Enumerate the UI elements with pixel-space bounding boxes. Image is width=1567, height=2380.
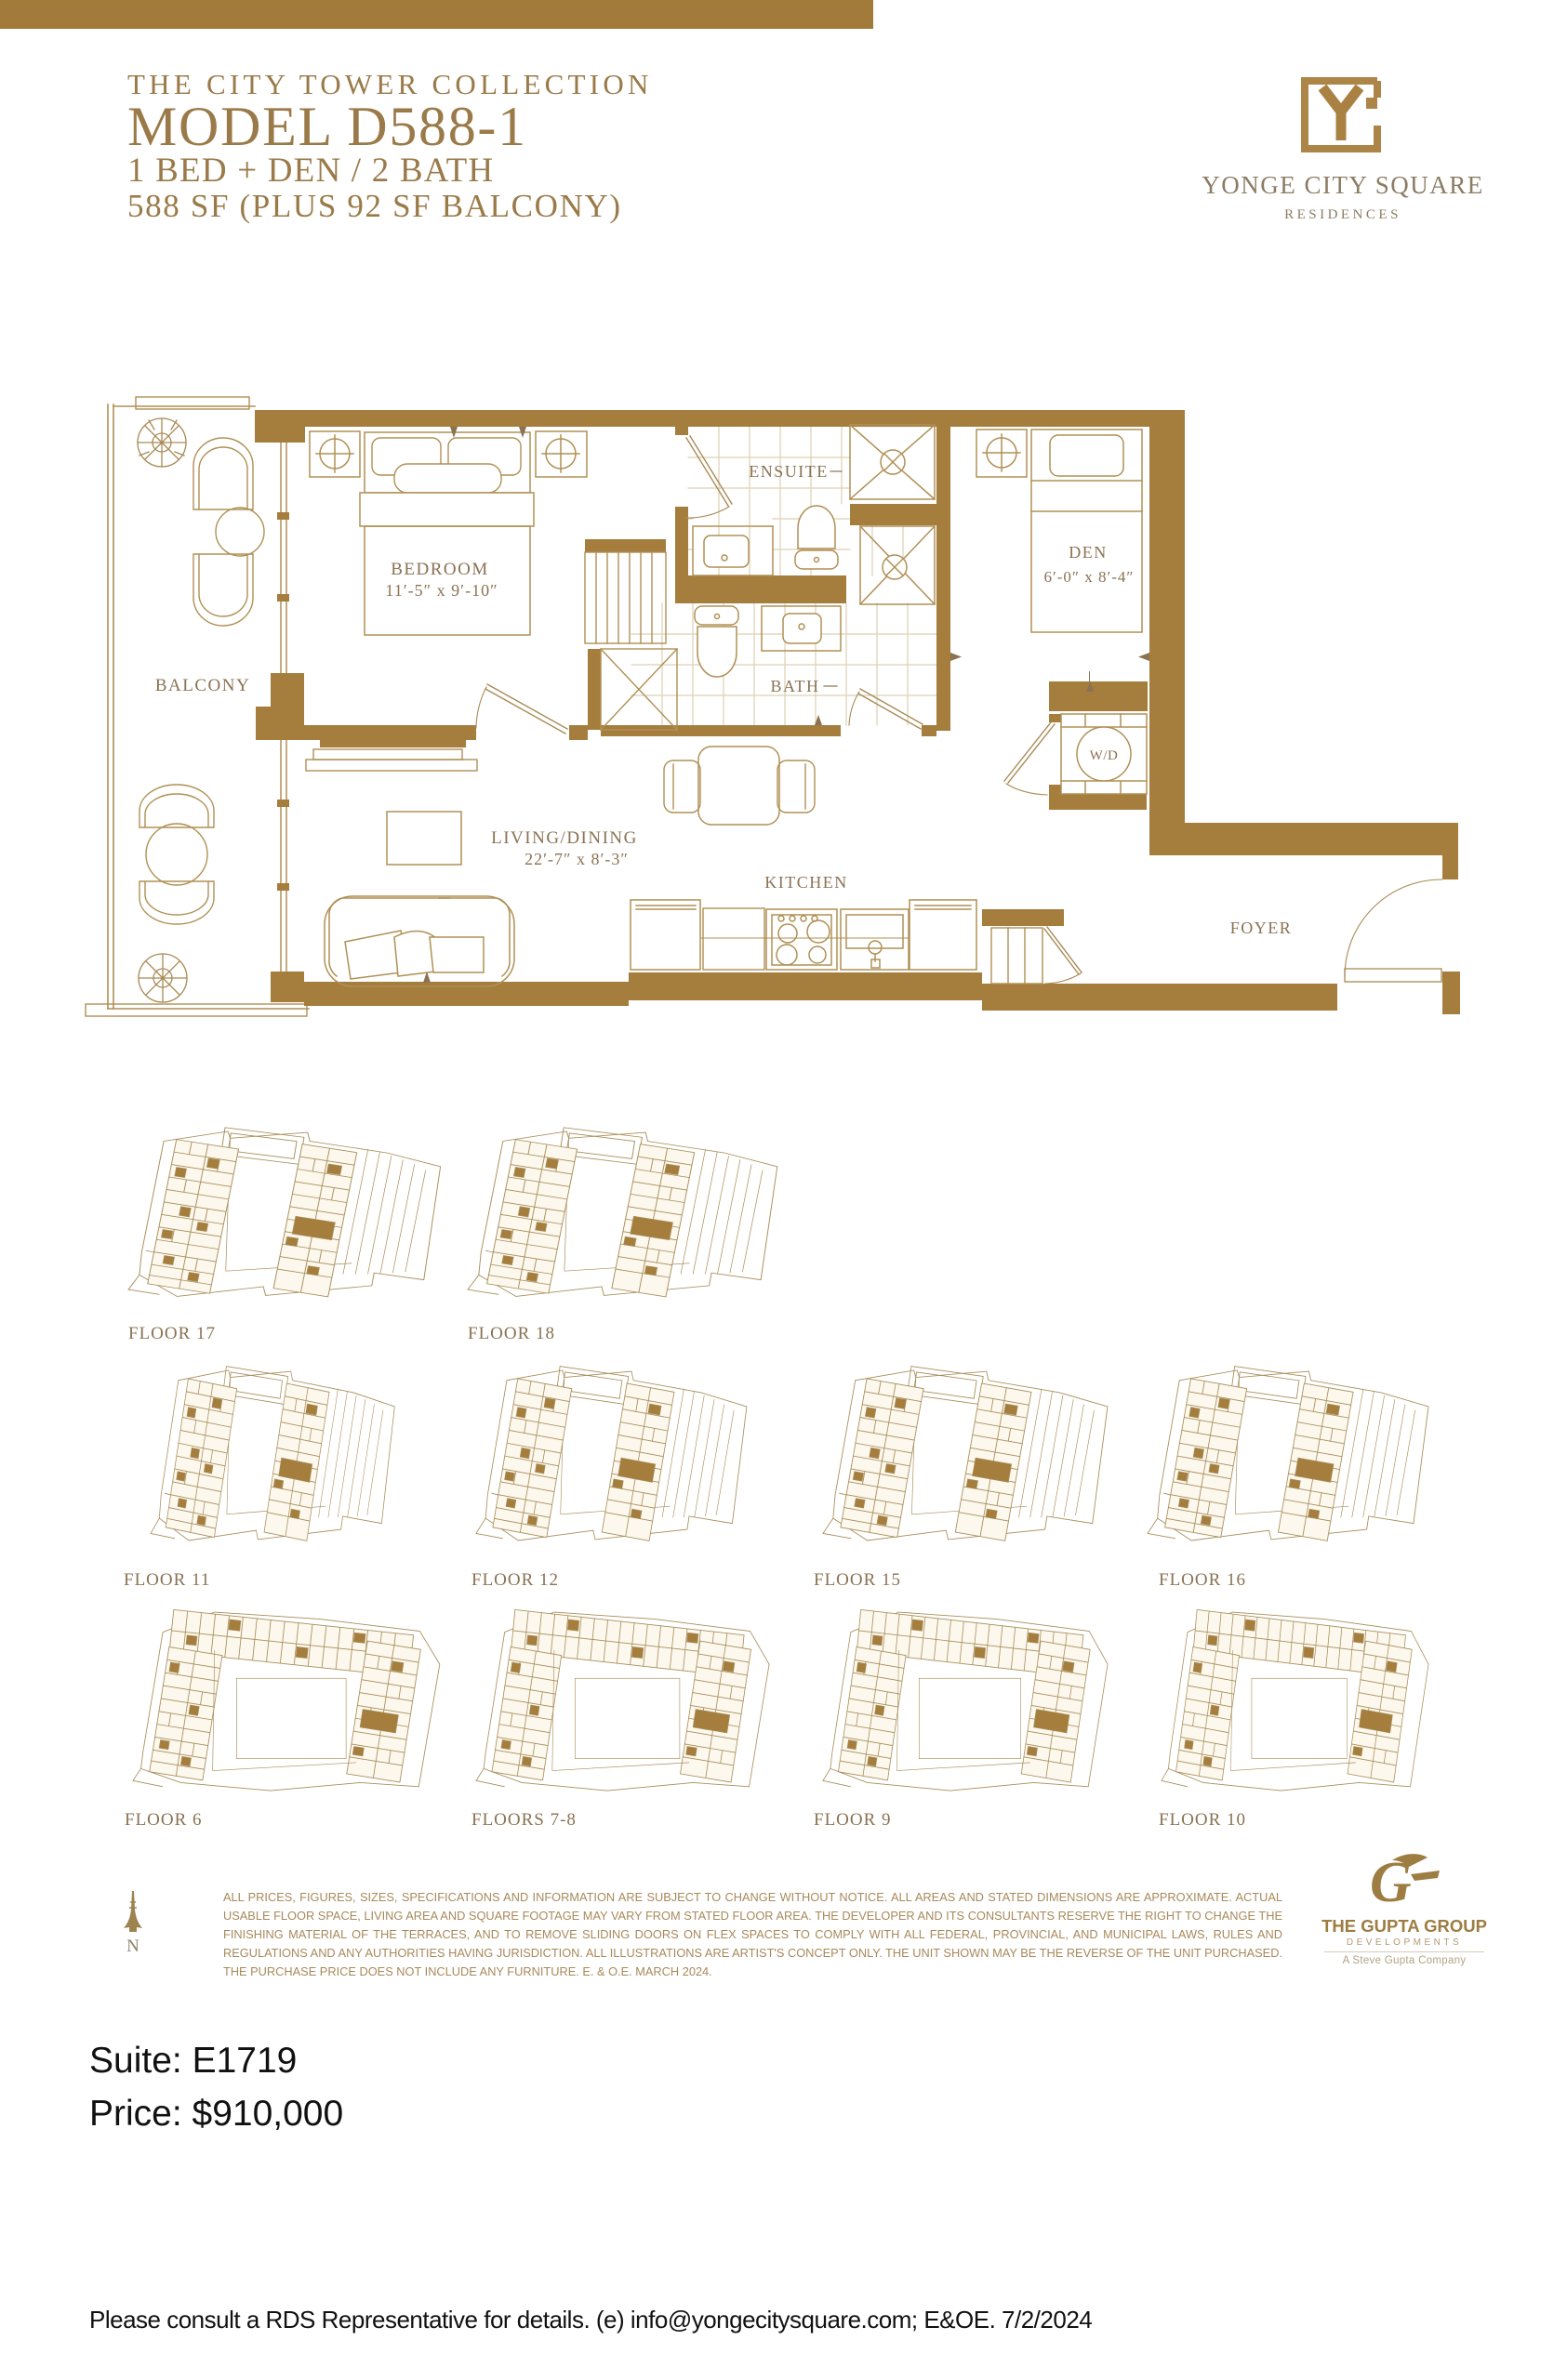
svg-text:FLOOR 16: FLOOR 16 [1159,1570,1246,1590]
svg-text:FOYER: FOYER [1230,919,1293,937]
svg-text:DEN: DEN [1069,543,1108,562]
svg-text:LIVING/DINING: LIVING/DINING [491,828,638,848]
svg-text:FLOOR 9: FLOOR 9 [814,1810,892,1830]
svg-text:6′-0″ x 8′-4″: 6′-0″ x 8′-4″ [1044,568,1135,586]
svg-text:RESIDENCES: RESIDENCES [1284,207,1401,222]
svg-text:FLOOR 11: FLOOR 11 [124,1570,210,1590]
svg-text:FLOOR 17: FLOOR 17 [128,1324,216,1343]
svg-text:FLOOR 6: FLOOR 6 [125,1810,203,1830]
svg-text:BALCONY: BALCONY [155,676,250,695]
svg-text:11′-5″ x 9′-10″: 11′-5″ x 9′-10″ [385,581,498,600]
svg-text:FLOOR 10: FLOOR 10 [1159,1810,1246,1830]
svg-text:KITCHEN: KITCHEN [764,873,848,892]
svg-text:FLOOR 12: FLOOR 12 [471,1570,559,1590]
svg-text:22′-7″ x 8′-3″: 22′-7″ x 8′-3″ [525,850,629,868]
svg-text:W/D: W/D [1090,748,1119,763]
svg-text:FLOOR 18: FLOOR 18 [468,1324,555,1343]
svg-text:BEDROOM: BEDROOM [391,560,489,579]
svg-text:N: N [126,1937,139,1956]
svg-text:FLOORS 7-8: FLOORS 7-8 [471,1810,577,1830]
svg-text:YONGE CITY SQUARE: YONGE CITY SQUARE [1202,171,1484,199]
svg-text:BATH: BATH [770,677,819,695]
svg-text:FLOOR 15: FLOOR 15 [814,1570,901,1590]
svg-text:ENSUITE: ENSUITE [749,462,829,481]
